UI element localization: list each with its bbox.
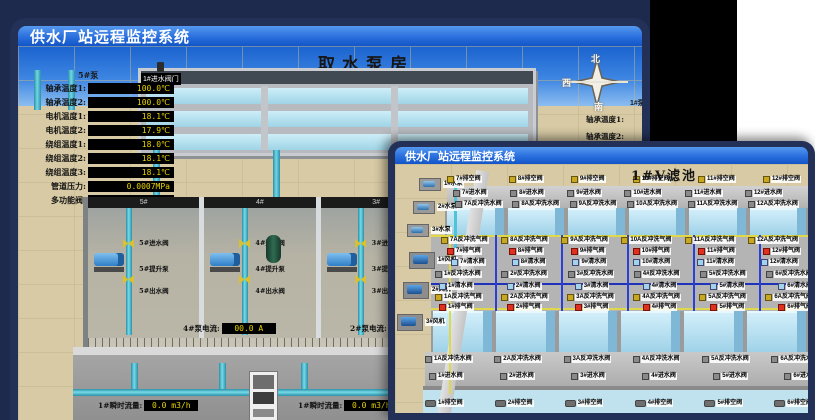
valve-icon [435,271,442,278]
control-cabinet [249,371,278,420]
metric-value[interactable]: 0.0007MPa [88,181,174,192]
lower-filter-cells [431,311,808,352]
drain-pump[interactable]: 1#排空阀 [425,400,464,407]
valve-icon [634,271,641,278]
valve-icon [451,259,458,266]
upper-vent-valve-row: 7#排气阀8#排气阀9#排气阀10#排气阀11#排气阀12#排气阀 [447,248,801,255]
valve-label: 3#排空阀 [577,400,604,407]
valve-icon [435,294,442,301]
valve[interactable]: 8#排气阀 [509,248,544,255]
filter-cell [747,311,806,352]
cyan-pipe [273,150,280,198]
valve-label: 3A反冲洗水阀 [572,356,612,363]
drain-pump[interactable]: 5#排空阀 [704,400,743,407]
valve-label: 7#排空阀 [455,176,482,183]
valve-label: 10#排气阀 [641,248,671,255]
valve-label: 1A反冲洗水阀 [433,356,473,363]
valve-label: 1A反冲洗气阀 [443,294,483,301]
valve[interactable]: 7#进水阀 [453,190,488,197]
pump-base [94,267,124,272]
vent-valve-icon [763,248,770,255]
valve-icon [685,190,692,197]
valve-label: 1#进水阀 [437,373,464,380]
valve[interactable]: 2#排气阀 [507,304,542,311]
water-pump-icon [407,224,429,237]
readout-label: 2#泵电流: [350,323,387,334]
valve-label: 9#排空阀 [579,176,606,183]
filter-cell [629,208,686,235]
lower-backwash-air-valve-row: 1A反冲洗气阀2A反冲洗气阀3A反冲洗气阀4A反冲洗气阀5A反冲洗气阀6A反冲洗… [435,294,808,301]
valve-label: 7#排气阀 [455,248,482,255]
cabinet-window [253,392,274,404]
valve-icon [507,283,514,290]
pump5-metrics-panel: 5#泵 轴承温度1: 100.0℃ 轴承温度2: 100.0℃ [22,70,184,209]
valve-icon [685,237,692,244]
valve-label: 12#进水阀 [753,190,783,197]
water-pump-unit[interactable]: 3#水泵 [407,224,452,237]
filter-cell [684,311,743,352]
valve[interactable]: 8A反冲洗气阀 [501,237,549,244]
valve-icon [748,201,755,208]
valve[interactable]: 12#排气阀 [763,248,801,255]
metric-value[interactable]: 18.1℃ [88,111,174,122]
cabinet-panel [253,409,274,417]
valve-icon [697,259,704,266]
valve-icon [688,201,695,208]
valve-label: 3A反冲洗气阀 [575,294,615,301]
valve[interactable]: 8#排空阀 [509,176,544,183]
valve-label: 12#排气阀 [771,248,801,255]
valve[interactable]: 2#进水阀 [500,373,535,380]
pressure-tank-icon [266,235,281,263]
valve-icon [765,294,772,301]
valve[interactable]: 7A反冲洗气阀 [441,237,489,244]
upper-backwash-water-valve-row: 7A反冲洗水阀8A反冲洗水阀9A反冲洗水阀10A反冲洗水阀11A反冲洗水阀12A… [455,201,799,208]
valve-label: 2#进水阀 [508,373,535,380]
valve-label: 11A反冲洗气阀 [693,237,736,244]
cyan-pipe [126,208,132,335]
drain-pump[interactable]: 3#排空阀 [565,400,604,407]
valve-label: 6#反冲洗水阀 [774,271,808,278]
valve[interactable]: 6#排气阀 [778,304,808,311]
metric-row: 绕组温度3: 18.1℃ [22,167,184,178]
front-window-title: 供水厂站远程监控系统 [405,148,515,164]
outlet-valve-label[interactable]: 4#出水阀 [255,285,284,295]
metric-row: 管道压力: 0.0007MPa [22,181,184,192]
drain-pump-icon [704,400,715,407]
front-window-titlebar[interactable]: 供水厂站远程监控系统 [395,147,808,164]
blower-icon [409,252,435,269]
filter-cell [559,311,618,352]
valve-label: 2#排空阀 [507,400,534,407]
valve[interactable]: 3A反冲洗气阀 [567,294,615,301]
pool-divider [261,86,268,150]
valve-icon [633,356,640,363]
metric-label: 电机温度2: [22,125,86,136]
valve-label: 5#清水阀 [718,283,745,290]
vent-valve-icon [643,304,650,311]
cyan-pipe [131,363,138,391]
upper-backwash-air-valve-row: 7A反冲洗气阀8A反冲洗气阀9A反冲洗气阀10A反冲洗气阀11A反冲洗气阀12A… [441,237,799,244]
valve-icon [642,373,649,380]
valve[interactable]: 10#清水阀 [633,259,671,266]
valve[interactable]: 2#反冲洗水阀 [501,271,548,278]
blower-icon [397,314,423,331]
metric-label: 轴承温度2: [22,97,86,108]
inlet-valve-label[interactable]: 5#进水阀 [139,237,168,247]
valve[interactable]: 7#排气阀 [447,248,482,255]
water-pump-icon [419,178,441,191]
valve-icon [713,373,720,380]
valve-icon [572,259,579,266]
valve[interactable]: 2A反冲洗水阀 [494,356,542,363]
valve[interactable]: 2A反冲洗气阀 [501,294,549,301]
background-white-panel [737,0,815,155]
lift-pump-icon[interactable] [327,253,357,266]
back-window-titlebar[interactable]: 供水厂站远程监控系统 [18,26,642,46]
valve-label: 10#清水阀 [641,259,671,266]
valve-label: 4#排空阀 [647,400,674,407]
outlet-valve-label[interactable]: 5#出水阀 [139,285,168,295]
valve-icon [710,283,717,290]
valve[interactable]: 12#清水阀 [761,259,799,266]
valve[interactable]: 9#排气阀 [571,248,606,255]
bay-number: 4# [204,197,315,208]
valve[interactable]: 11A反冲洗气阀 [685,237,736,244]
valve[interactable]: 8#进水阀 [510,190,545,197]
valve[interactable]: 10A反冲洗水阀 [627,201,678,208]
valve-label: 8A反冲洗水阀 [520,201,560,208]
lower-clean-water-valve-row: 1#清水阀2#清水阀3#清水阀4#清水阀5#清水阀6#清水阀 [439,283,808,290]
drain-pump-icon [495,400,506,407]
cyan-pipe [358,208,364,335]
valve[interactable]: 10A反冲洗气阀 [621,237,672,244]
valve[interactable]: 7#清水阀 [451,259,486,266]
valve-label: 5#进水阀 [721,373,748,380]
flow-readout: 1#瞬时流量: 0.0 m3/h [298,400,398,411]
vent-valve-icon [447,248,454,255]
valve[interactable]: 5#排气阀 [710,304,745,311]
valve-icon [745,190,752,197]
valve-label: 1#清水阀 [447,283,474,290]
valve-label: 4#清水阀 [651,283,678,290]
valve[interactable]: 4A反冲洗水阀 [633,356,681,363]
scada-desktop: 供水厂站远程监控系统 取水泵房 3#进水阀门 [0,0,815,420]
valve-label: 4#进水阀 [650,373,677,380]
valve-label: 11#排气阀 [706,248,736,255]
metric-value[interactable]: 100.0℃ [88,97,174,108]
metric-value[interactable]: 18.1℃ [88,153,174,164]
valve-label: 7A反冲洗气阀 [449,237,489,244]
valve-label: 6#排空阀 [786,400,808,407]
valve-icon [571,176,578,183]
readout-label: 1#瞬时流量: [98,400,142,411]
valve-label: 11#进水阀 [693,190,723,197]
filter-cell [508,208,565,235]
cyan-pipe [242,208,248,335]
valve[interactable]: 4#排气阀 [643,304,678,311]
valve-label: 1#排气阀 [447,304,474,311]
valve[interactable]: 2#清水阀 [507,283,542,290]
compass-west: 西 [562,76,571,89]
valve-label: 12A反冲洗水阀 [756,201,799,208]
valve-icon [748,237,755,244]
valve-label: 7#清水阀 [459,259,486,266]
valve[interactable]: 8#清水阀 [512,259,547,266]
valve-label: 4#反冲洗水阀 [642,271,681,278]
valve[interactable]: 9#清水阀 [572,259,607,266]
valve[interactable]: 9A反冲洗水阀 [570,201,618,208]
valve-label: 7#进水阀 [461,190,488,197]
valve[interactable]: 11#进水阀 [685,190,723,197]
upper-filter-cells [445,208,808,235]
vent-valve-icon [509,248,516,255]
valve-label: 6#清水阀 [786,283,808,290]
lift-pump-label[interactable]: 4#提升泵 [255,263,284,273]
cyan-pipe [301,363,308,391]
valve[interactable]: 5A反冲洗水阀 [702,356,750,363]
drain-pump[interactable]: 2#排空阀 [495,400,534,407]
valve-icon [766,271,773,278]
valve[interactable]: 6#进水阀 [784,373,808,380]
filter-cell [496,311,555,352]
valve[interactable]: 3A反冲洗水阀 [564,356,612,363]
valve-label: 7A反冲洗水阀 [463,201,503,208]
metric-row: 绕组温度1: 18.0℃ [22,139,184,150]
valve-icon [453,190,460,197]
valve-label: 9A反冲洗水阀 [578,201,618,208]
valve[interactable]: 12A反冲洗水阀 [748,201,799,208]
lift-pump-label[interactable]: 5#提升泵 [139,263,168,273]
pump5-header: 5#泵 [78,70,184,81]
valve[interactable]: 5A反冲洗气阀 [699,294,747,301]
drain-pump-icon [565,400,576,407]
valve-label: 6A反冲洗水阀 [779,356,808,363]
pump-base [210,267,240,272]
valve-icon [699,294,706,301]
valve[interactable]: 12#进水阀 [745,190,783,197]
valve[interactable]: 3#反冲洗水阀 [568,271,615,278]
valve-icon [494,356,501,363]
valve[interactable]: 9A反冲洗气阀 [561,237,609,244]
valve[interactable]: 5#进水阀 [713,373,748,380]
valve[interactable]: 9#排空阀 [571,176,606,183]
valve[interactable]: 4A反冲洗气阀 [633,294,681,301]
cyan-pipe [219,363,226,391]
metric-row: 电机温度2: 17.9℃ [22,125,184,136]
valve-label: 9A反冲洗气阀 [569,237,609,244]
valve[interactable]: 4#进水阀 [642,373,677,380]
valve-label: 6#进水阀 [792,373,808,380]
filter-pool-scene: 1#V滤池 [395,164,808,413]
valve-icon [512,201,519,208]
valve-label: 4A反冲洗水阀 [641,356,681,363]
valve-label: 5#排气阀 [718,304,745,311]
metric-value[interactable]: 18.0℃ [88,139,174,150]
valve[interactable]: 1#进水阀 [429,373,464,380]
valve[interactable]: 3#清水阀 [575,283,610,290]
vent-valve-icon [698,248,705,255]
metric-value[interactable]: 17.9℃ [88,125,174,136]
valve[interactable]: 11#排气阀 [698,248,736,255]
valve-icon [429,373,436,380]
valve-label: 12#清水阀 [769,259,799,266]
valve-label: 11A反冲洗水阀 [696,201,739,208]
valve[interactable]: 10#进水阀 [624,190,662,197]
scene-title: 1#V滤池 [631,165,697,184]
upper-inlet-valve-row: 7#进水阀8#进水阀9#进水阀10#进水阀11#进水阀12#进水阀 [453,190,783,197]
valve[interactable]: 11A反冲洗水阀 [688,201,739,208]
valve-icon [500,373,507,380]
valve-icon [447,176,454,183]
valve-icon [624,190,631,197]
valve[interactable]: 1A反冲洗水阀 [425,356,473,363]
lower-inlet-valve-row: 1#进水阀2#进水阀3#进水阀4#进水阀5#进水阀6#进水阀 [429,373,808,380]
metric-row: 轴承温度1: 100.0℃ [22,83,184,94]
valve-icon [702,356,709,363]
readout-label: 1#瞬时流量: [298,400,342,411]
valve-icon [439,283,446,290]
valve-icon [621,237,628,244]
valve-label: 8#排空阀 [517,176,544,183]
valve-label: 6A反冲洗气阀 [773,294,808,301]
valve[interactable]: 11#清水阀 [697,259,735,266]
valve-label: 12A反冲洗气阀 [756,237,799,244]
valve[interactable]: 4#反冲洗水阀 [634,271,681,278]
valve-label: 1#反冲洗水阀 [443,271,482,278]
valve-icon [778,283,785,290]
lower-backwash-water-valve-row: 1A反冲洗水阀2A反冲洗水阀3A反冲洗水阀4A反冲洗水阀5A反冲洗水阀6A反冲洗… [425,356,808,363]
pump1-metrics-panel-partial: 1#泵 轴承温度1: 轴承温度2: [586,98,642,142]
pool-top-wall [141,71,533,84]
valve-icon [575,283,582,290]
valve[interactable]: 7A反冲洗水阀 [455,201,503,208]
readout-label: 4#泵电流: [183,323,220,334]
valve-label: 8A反冲洗气阀 [509,237,549,244]
lift-pump-icon[interactable] [210,253,240,266]
lower-backwash-water-valve-row-b: 1#反冲洗水阀2#反冲洗水阀3#反冲洗水阀4#反冲洗水阀5#反冲洗水阀6#反冲洗… [435,271,808,278]
valve[interactable]: 5#清水阀 [710,283,745,290]
valve-icon [512,259,519,266]
valve-label: 2#清水阀 [515,283,542,290]
pool-water-channel [146,111,528,127]
valve-icon [633,294,640,301]
metric-label: 绕组温度2: [22,153,86,164]
valve-icon [561,237,568,244]
metric-label: 管道压力: [22,181,86,192]
pump1-header: 1#泵 [630,98,642,108]
valve-icon [441,237,448,244]
background-black-panel [650,0,737,155]
lower-vent-valve-row: 1#排气阀2#排气阀3#排气阀4#排气阀5#排气阀6#排气阀 [439,304,808,311]
metric-label: 轴承温度1: [586,114,642,125]
valve-label: 5A反冲洗水阀 [710,356,750,363]
valve[interactable]: 9#进水阀 [567,190,602,197]
filter-cell [750,208,807,235]
valve-label: 3#反冲洗水阀 [576,271,615,278]
valve-label: 9#排气阀 [579,248,606,255]
valve[interactable]: 7#排空阀 [447,176,482,183]
valve[interactable]: 12A反冲洗气阀 [748,237,799,244]
vent-valve-icon [507,304,514,311]
valve[interactable]: 6#清水阀 [778,283,808,290]
valve[interactable]: 11#排空阀 [698,176,736,183]
valve-icon [633,259,640,266]
valve-icon [567,294,574,301]
valve[interactable]: 1A反冲洗气阀 [435,294,483,301]
metric-row: 轴承温度2: 100.0℃ [22,97,184,108]
valve-icon [567,190,574,197]
drain-pump[interactable]: 4#排空阀 [635,400,674,407]
metric-label: 轴承温度1: [22,83,86,94]
valve-label: 5A反冲洗气阀 [707,294,747,301]
valve-icon [627,201,634,208]
readout-value[interactable]: 00.0 A [222,323,276,334]
valve-label: 4A反冲洗气阀 [641,294,681,301]
valve[interactable]: 1#排气阀 [439,304,474,311]
drain-pump-icon [425,400,436,407]
valve[interactable]: 1#清水阀 [439,283,474,290]
valve-icon [509,176,516,183]
metric-label: 电机温度1: [22,111,86,122]
blower-icon [403,282,429,299]
valve-icon [510,190,517,197]
lower-drain-pump-row: 1#排空阀2#排空阀3#排空阀4#排空阀5#排空阀6#排空阀 [425,400,808,407]
vent-valve-icon [778,304,785,311]
valve-icon [763,176,770,183]
blower-unit[interactable]: 3#风机 [397,314,446,331]
cabinet-panel [253,375,274,389]
valve-label: 2A反冲洗水阀 [502,356,542,363]
valve[interactable]: 6A反冲洗水阀 [771,356,808,363]
valve[interactable]: 10#排气阀 [633,248,671,255]
valve-label: 4#排气阀 [651,304,678,311]
valve[interactable]: 4#清水阀 [643,283,678,290]
valve-icon [700,271,707,278]
metric-label: 绕组温度3: [22,167,86,178]
valve-icon [784,373,791,380]
pump-base [327,267,357,272]
water-pump-unit[interactable]: 2#水泵 [413,201,458,214]
valve[interactable]: 12#排空阀 [763,176,801,183]
valve-icon [570,201,577,208]
upper-drain-valve-row: 7#排空阀8#排空阀9#排空阀10#排空阀11#排空阀12#排空阀 [447,176,801,183]
valve[interactable]: 5#反冲洗水阀 [700,271,747,278]
readout-value[interactable]: 0.0 m3/h [144,400,198,411]
valve-icon [571,373,578,380]
upper-clean-water-valve-row: 7#清水阀8#清水阀9#清水阀10#清水阀11#清水阀12#清水阀 [451,259,799,266]
filter-pool-window[interactable]: 供水厂站远程监控系统 1#V滤池 [388,141,815,420]
valve[interactable]: 6A反冲洗气阀 [765,294,808,301]
valve[interactable]: 6#反冲洗水阀 [766,271,808,278]
valve[interactable]: 3#排气阀 [575,304,610,311]
valve-label: 11#清水阀 [705,259,735,266]
blower-label: 3#风机 [425,319,446,326]
valve-label: 8#进水阀 [518,190,545,197]
metric-value[interactable]: 18.1℃ [88,167,174,178]
bay-number: 5# [88,197,199,208]
valve[interactable]: 3#进水阀 [571,373,606,380]
valve[interactable]: 8A反冲洗水阀 [512,201,560,208]
valve[interactable]: 1#反冲洗水阀 [435,271,482,278]
valve-icon [501,271,508,278]
flow-readout: 1#瞬时流量: 0.0 m3/h [98,400,198,411]
drain-pump[interactable]: 6#排空阀 [774,400,808,407]
lift-pump-icon[interactable] [94,253,124,266]
valve-label: 9#进水阀 [575,190,602,197]
valve-icon [643,283,650,290]
metric-value[interactable]: 100.0℃ [88,83,174,94]
